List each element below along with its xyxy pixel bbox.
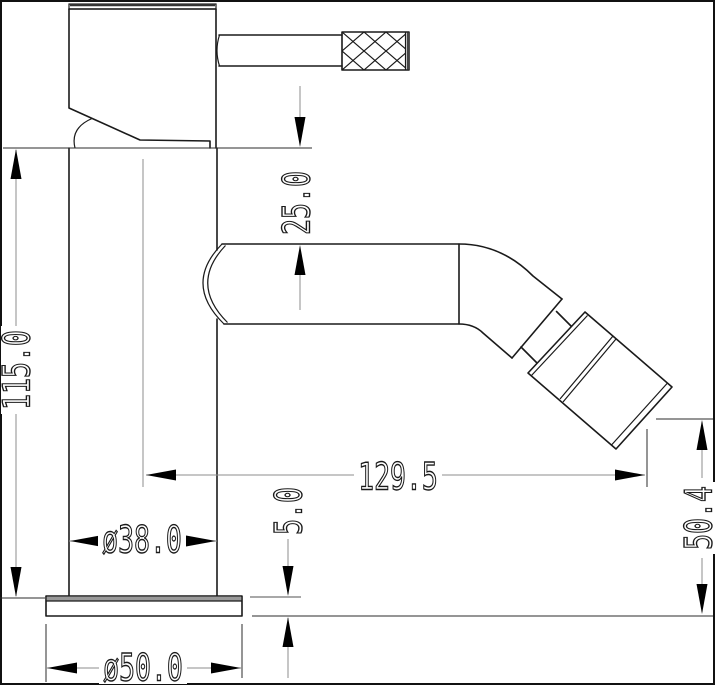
aerator-head <box>528 312 672 449</box>
body-outline-left-cut <box>69 9 210 148</box>
dim-value-body-diameter: ø38.0 <box>102 518 182 562</box>
faucet-technical-drawing: 115.0 25.0 129.5 50.4 5.0 ø38.0 ø50.0 <box>0 0 715 685</box>
dim-value-outlet-height: 50.4 <box>677 486 715 550</box>
lever-base-arc <box>217 35 220 66</box>
dim-value-overall-height: 115.0 <box>0 330 39 410</box>
arrow-up-icon <box>11 149 22 179</box>
arrow-right-icon <box>186 536 216 547</box>
dim-value-base-diameter: ø50.0 <box>103 646 183 685</box>
elbow-inner <box>459 324 512 358</box>
technical-drawing-page: 115.0 25.0 129.5 50.4 5.0 ø38.0 ø50.0 <box>0 0 715 685</box>
arrow-left-icon <box>146 470 176 481</box>
arrow-right-icon <box>211 663 241 674</box>
label-body-diameter: ø38.0 <box>98 518 186 562</box>
label-spout-reach: 129.5 <box>354 455 442 499</box>
arrow-up-icon <box>283 617 294 647</box>
label-base-diameter: ø50.0 <box>99 646 187 685</box>
lever-shaft <box>219 35 342 66</box>
elbow-outer <box>459 244 562 299</box>
arrow-down-icon <box>283 566 294 596</box>
base-plate <box>46 596 242 616</box>
label-outlet-height: 50.4 <box>677 482 715 554</box>
dim-value-base-thickness: 5.0 <box>267 487 311 535</box>
spout-pipe <box>222 244 459 324</box>
arrow-down-icon <box>697 584 708 614</box>
base-plate-top-band <box>47 597 241 601</box>
arrow-down-icon <box>11 567 22 597</box>
dim-value-spout-top-offset: 25.0 <box>275 171 319 235</box>
pipe-column-joint-arc-outer <box>203 244 224 324</box>
arrow-up-icon <box>697 420 708 450</box>
body-outline-right <box>69 9 216 148</box>
arrow-left-icon <box>47 663 77 674</box>
handle-lever <box>217 32 409 70</box>
arrow-left-icon <box>70 536 100 547</box>
knurl-pattern <box>342 32 406 70</box>
arrow-up-icon <box>295 245 306 275</box>
label-base-thickness: 5.0 <box>267 483 311 539</box>
arrow-right-icon <box>615 470 645 481</box>
arrow-down-icon <box>295 117 306 147</box>
label-spout-top-offset: 25.0 <box>275 167 319 239</box>
spout <box>203 244 672 449</box>
label-overall-height: 115.0 <box>0 326 39 414</box>
dim-value-spout-reach: 129.5 <box>358 455 438 499</box>
body-cone-arc <box>74 119 92 149</box>
